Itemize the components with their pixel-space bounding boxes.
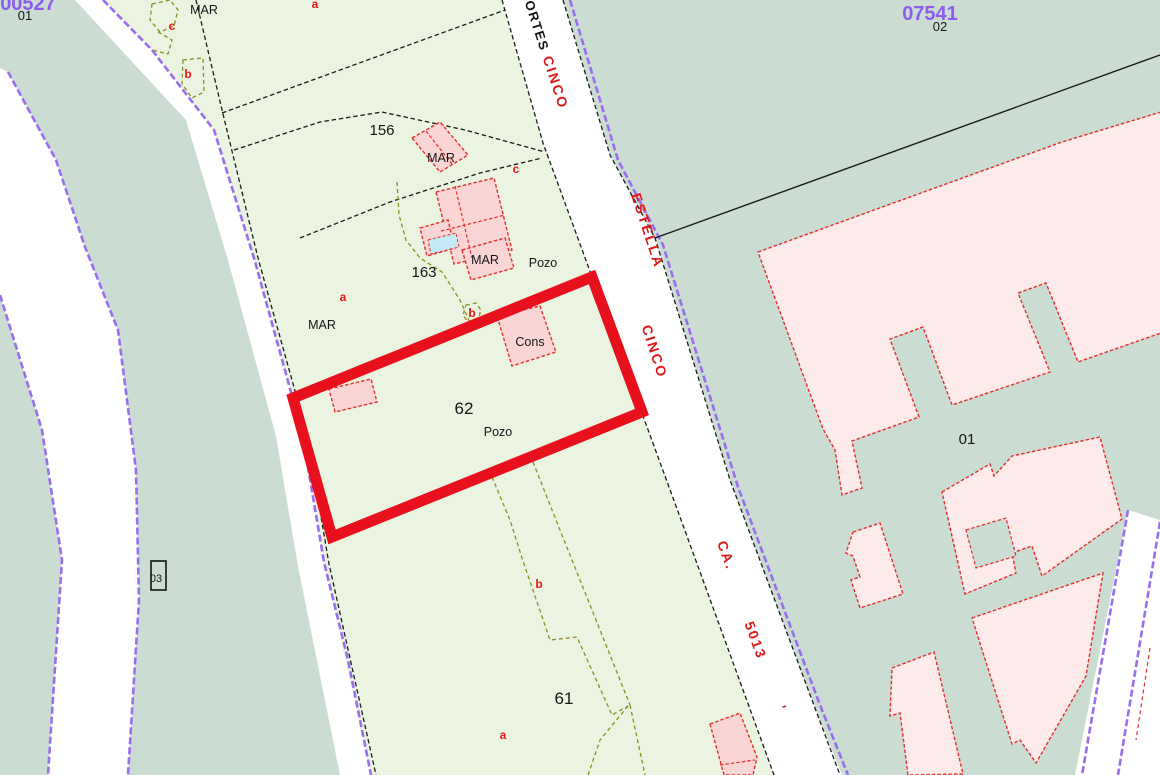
label-mar-163: MAR xyxy=(471,253,499,267)
subparcel-b-top: b xyxy=(184,67,191,81)
block-01-right: 01 xyxy=(959,431,976,448)
cadastral-map-viewport[interactable]: 00527010754102MARacbCORTESCINCO156MARc16… xyxy=(0,0,1160,775)
subparcel-c-163: c xyxy=(513,162,520,176)
subparcel-b-61: b xyxy=(535,577,542,591)
block-01-topleft: 01 xyxy=(18,8,32,23)
subparcel-b-163: b xyxy=(468,306,475,320)
label-mar-a: MAR xyxy=(308,318,336,332)
block-02: 02 xyxy=(933,19,947,34)
subparcel-a-top: a xyxy=(312,0,319,11)
cadastral-map[interactable]: 00527010754102MARacbCORTESCINCO156MARc16… xyxy=(0,0,1160,775)
block-03: 03 xyxy=(150,573,162,585)
parcel-62: 62 xyxy=(455,399,474,418)
subparcel-c-top: c xyxy=(169,19,176,33)
label-pozo-163: Pozo xyxy=(529,256,558,270)
label-mar-top: MAR xyxy=(190,3,218,17)
label-cons: Cons xyxy=(515,335,544,349)
parcel-156: 156 xyxy=(369,122,394,139)
subparcel-a-163: a xyxy=(340,290,347,304)
subparcel-a-61: a xyxy=(500,728,507,742)
label-mar-156: MAR xyxy=(427,151,455,165)
parcel-163: 163 xyxy=(411,264,436,281)
label-pozo-62: Pozo xyxy=(484,425,513,439)
sheet-code-07541: 07541 xyxy=(902,3,958,25)
parcel-61: 61 xyxy=(555,689,574,708)
